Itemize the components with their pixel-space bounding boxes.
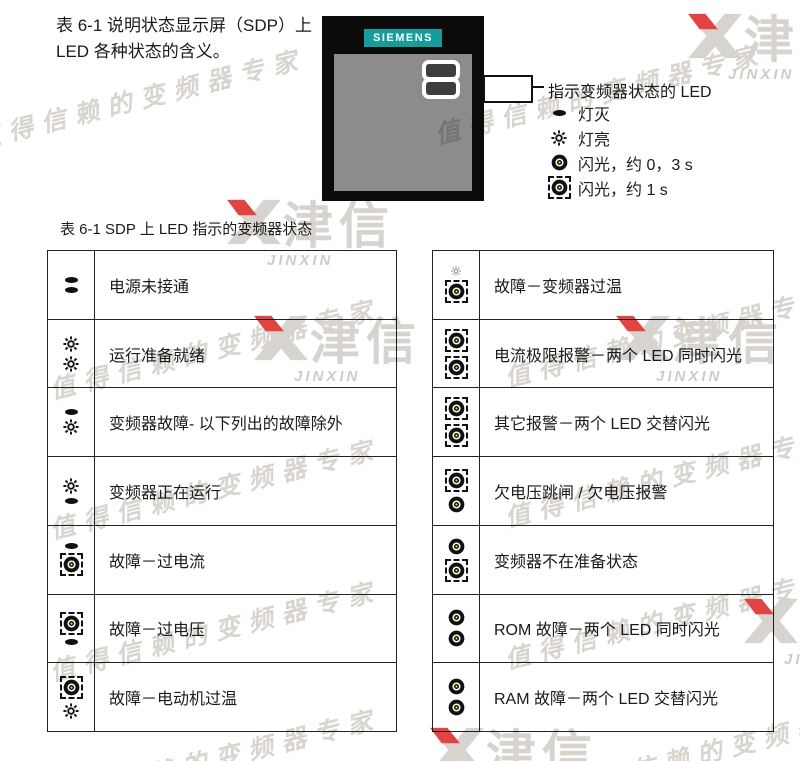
led-state-cell xyxy=(433,388,480,456)
led-on-icon xyxy=(63,356,79,372)
sdp-display-panel xyxy=(334,54,472,191)
led-flash1s-icon xyxy=(445,424,468,447)
led-state-cell xyxy=(48,526,95,594)
status-label: 变频器正在运行 xyxy=(95,457,396,525)
led-bottom xyxy=(422,78,460,99)
legend-item-flash-1s: 闪光，约 1 s xyxy=(544,175,693,200)
led-pointer-box xyxy=(483,75,533,103)
intro-line-1: 表 6-1 说明状态显示屏（SDP）上 xyxy=(56,13,336,39)
led-off-icon xyxy=(65,543,78,549)
intro-paragraph: 表 6-1 说明状态显示屏（SDP）上 LED 各种状态的含义。 xyxy=(56,13,336,66)
status-label: 故障－变频器过温 xyxy=(480,251,773,319)
sdp-device-image: SIEMENS xyxy=(322,16,484,201)
led-flash03s-icon xyxy=(448,678,465,695)
table-row: 欠电压跳闸 / 欠电压报警 xyxy=(433,457,773,526)
table-row: 变频器故障- 以下列出的故障除外 xyxy=(48,388,396,457)
led-flash1s-icon xyxy=(548,176,571,199)
jinxin-cn-text: 津信 xyxy=(744,0,800,72)
status-label: 电源未接通 xyxy=(95,251,396,319)
led-off-icon xyxy=(553,110,566,116)
status-label: 变频器不在准备状态 xyxy=(480,526,773,594)
led-dim-icon xyxy=(451,266,461,276)
led-flash1s-icon xyxy=(445,397,468,420)
status-label: RAM 故障－两个 LED 交替闪光 xyxy=(480,663,773,731)
table-row: 故障－过电流 xyxy=(48,526,396,595)
led-state-cell xyxy=(433,663,480,731)
led-flash1s-icon xyxy=(445,356,468,379)
led-on-icon xyxy=(63,336,79,352)
legend-label: 闪光，约 1 s xyxy=(578,176,668,200)
status-label: 欠电压跳闸 / 欠电压报警 xyxy=(480,457,773,525)
led-state-cell xyxy=(48,595,95,663)
led-off-icon xyxy=(544,110,574,116)
led-off-icon xyxy=(65,409,78,415)
led-on-icon xyxy=(544,130,574,146)
status-table-right: 故障－变频器过温 电流极限报警－两个 LED 同时闪光 其它报警－两个 LED … xyxy=(432,250,774,732)
led-off-icon xyxy=(65,639,78,645)
led-on-icon xyxy=(63,478,79,494)
led-flash03s-icon xyxy=(448,538,465,555)
led-flash03s-icon xyxy=(448,496,465,513)
table-row: 故障－过电压 xyxy=(48,595,396,664)
legend-label: 灯灭 xyxy=(578,101,610,125)
led-state-cell xyxy=(433,457,480,525)
status-label: 变频器故障- 以下列出的故障除外 xyxy=(95,388,396,456)
status-table-left: 电源未接通 运行准备就绪 变频器故障- 以下列出的故障除外 变频器正在运行 故障… xyxy=(47,250,397,732)
led-flash-03s-icon xyxy=(544,154,574,171)
led-state-cell xyxy=(48,320,95,388)
table-row: 电源未接通 xyxy=(48,251,396,320)
led-flash03s-icon xyxy=(448,609,465,626)
table-row: 故障－电动机过温 xyxy=(48,663,396,731)
led-flash1s-icon xyxy=(445,559,468,582)
led-flash1s-icon xyxy=(445,329,468,352)
intro-line-2: LED 各种状态的含义。 xyxy=(56,39,336,65)
watermark-jinxin-logo: 津信 JINXIN xyxy=(686,0,800,83)
led-pointer-label: 指示变频器状态的 LED xyxy=(548,78,712,102)
table-caption: 表 6-1 SDP 上 LED 指示的变频器状态 xyxy=(60,218,312,239)
status-label: 故障－过电流 xyxy=(95,526,396,594)
table-row: ROM 故障－两个 LED 同时闪光 xyxy=(433,595,773,664)
table-row: 电流极限报警－两个 LED 同时闪光 xyxy=(433,320,773,389)
led-on-icon xyxy=(551,130,567,146)
jinxin-en-text: JINXIN xyxy=(784,651,800,668)
led-flash1s-icon xyxy=(60,676,83,699)
led-flash-1s-icon xyxy=(544,176,574,199)
led-state-cell xyxy=(48,251,95,319)
led-flash1s-icon xyxy=(60,553,83,576)
led-flash1s-icon xyxy=(60,612,83,635)
led-state-cell xyxy=(433,251,480,319)
table-row: 变频器正在运行 xyxy=(48,457,396,526)
table-row: 变频器不在准备状态 xyxy=(433,526,773,595)
led-on-icon xyxy=(63,703,79,719)
jinxin-en-text: JINXIN xyxy=(728,66,800,83)
led-flash1s-icon xyxy=(445,469,468,492)
status-label: 运行准备就绪 xyxy=(95,320,396,388)
led-flash03s-icon xyxy=(551,154,568,171)
jinxin-x-icon xyxy=(686,12,744,60)
table-row: RAM 故障－两个 LED 交替闪光 xyxy=(433,663,773,731)
led-state-cell xyxy=(48,457,95,525)
status-label: 其它报警－两个 LED 交替闪光 xyxy=(480,388,773,456)
status-label: 故障－过电压 xyxy=(95,595,396,663)
legend-label: 灯亮 xyxy=(578,126,610,150)
siemens-logo: SIEMENS xyxy=(364,29,442,47)
led-legend: 灯灭 灯亮 闪光，约 0，3 s 闪光，约 1 s xyxy=(544,100,693,200)
legend-item-off: 灯灭 xyxy=(544,100,693,125)
led-flash1s-icon xyxy=(445,280,468,303)
status-led-pair xyxy=(422,60,460,99)
led-state-cell xyxy=(433,595,480,663)
legend-label: 闪光，约 0，3 s xyxy=(578,151,693,175)
table-row: 故障－变频器过温 xyxy=(433,251,773,320)
legend-item-flash-03s: 闪光，约 0，3 s xyxy=(544,150,693,175)
legend-item-on: 灯亮 xyxy=(544,125,693,150)
led-off-icon xyxy=(65,277,78,283)
led-pointer-line xyxy=(531,86,544,88)
status-label: ROM 故障－两个 LED 同时闪光 xyxy=(480,595,773,663)
led-state-cell xyxy=(48,388,95,456)
led-state-cell xyxy=(433,526,480,594)
status-label: 故障－电动机过温 xyxy=(95,663,396,731)
status-label: 电流极限报警－两个 LED 同时闪光 xyxy=(480,320,773,388)
led-off-icon xyxy=(65,287,78,293)
led-state-cell xyxy=(48,663,95,731)
led-flash03s-icon xyxy=(448,699,465,716)
document-page: 表 6-1 说明状态显示屏（SDP）上 LED 各种状态的含义。 SIEMENS… xyxy=(0,0,800,761)
table-row: 其它报警－两个 LED 交替闪光 xyxy=(433,388,773,457)
led-state-cell xyxy=(433,320,480,388)
table-row: 运行准备就绪 xyxy=(48,320,396,389)
led-flash03s-icon xyxy=(448,630,465,647)
led-off-icon xyxy=(65,498,78,504)
led-on-icon xyxy=(63,419,79,435)
